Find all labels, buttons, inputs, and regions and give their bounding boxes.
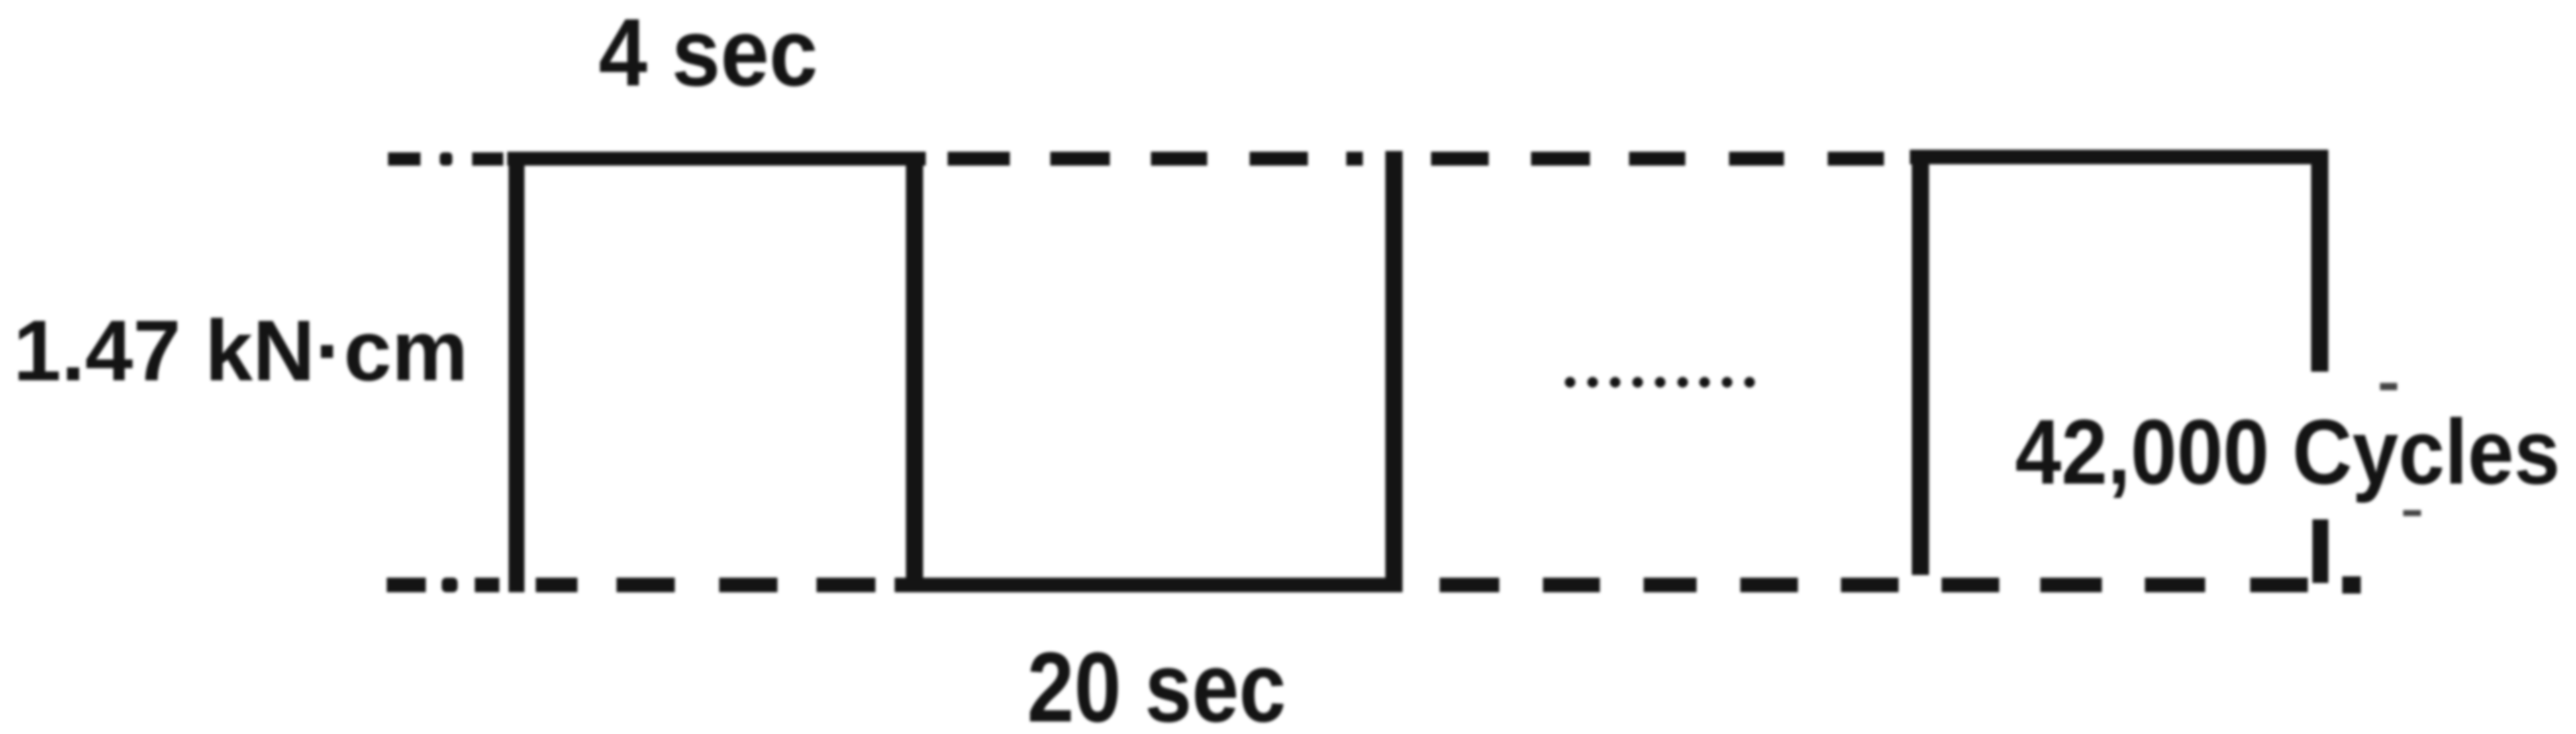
svg-text:1.47 kN·cm: 1.47 kN·cm <box>13 302 468 399</box>
svg-text:42,000 Cycles: 42,000 Cycles <box>2015 401 2560 503</box>
svg-text:20 sec: 20 sec <box>1027 631 1286 734</box>
svg-text:4 sec: 4 sec <box>599 0 818 106</box>
